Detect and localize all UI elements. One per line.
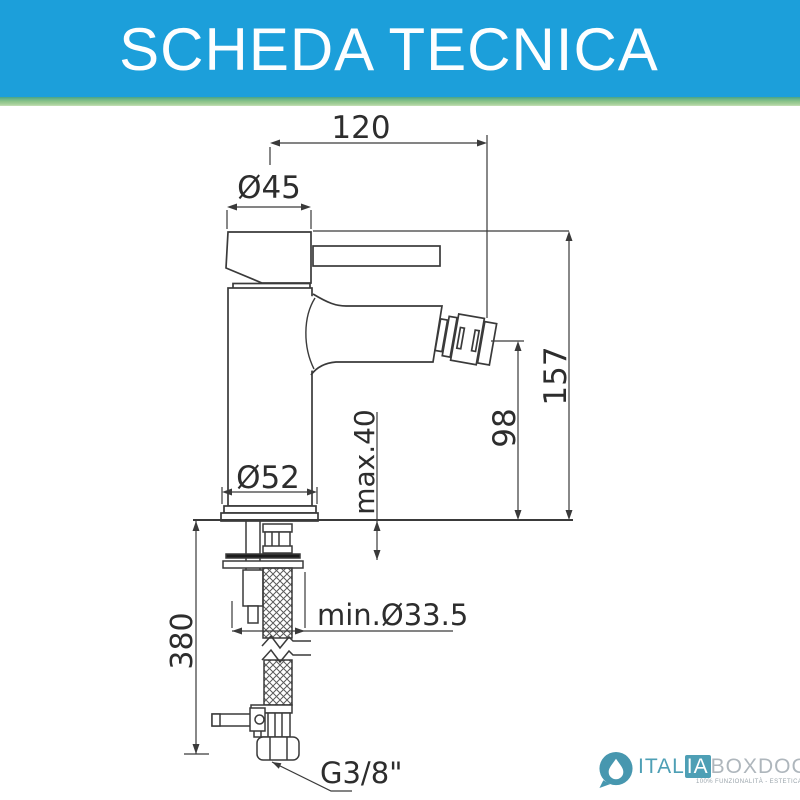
stud-nut [243,570,263,606]
aerator [434,311,497,367]
technical-drawing: 120 Ø45 157 98 max.40 Ø52 380 min.Ø33.5 … [0,106,800,800]
shank-collar-bottom [263,546,292,553]
faucet-spout-mask [306,296,442,371]
water-drop-icon [597,751,635,789]
base-flange-upper [224,506,316,513]
dim-hose-length: 380 [165,612,200,669]
technical-sheet-page: SCHEDA TECNICA [0,0,800,800]
dim-connection-thread: G3/8" [320,756,402,790]
clamping-plate [223,561,303,568]
gasket [226,554,300,558]
braided-hose-upper [263,568,292,638]
brand-tagline: 100% FUNZIONALITÀ - ESTETICA - PRATICITÀ [696,779,800,785]
under-deck-parts [212,521,311,760]
brand-name-rest: BOXDOCCIA [711,755,800,778]
brand-name-first: ITAL [638,755,685,778]
stud-tip [248,606,258,623]
dim-base-diameter: Ø52 [236,460,300,496]
hex-nut [257,737,299,760]
dim-min-hole-diameter: min.Ø33.5 [317,598,468,632]
dim-spout-height: 98 [487,408,523,447]
shank-collar-top [263,524,292,532]
dim-spout-projection: 120 [331,110,390,146]
page-title: SCHEDA TECNICA [0,0,800,97]
header-banner: SCHEDA TECNICA [0,0,800,97]
bracket-screw [255,715,264,724]
dim-total-height: 157 [538,346,574,405]
dim-deck-max-thickness: max.40 [348,409,381,515]
dim-cap-diameter: Ø45 [237,170,301,206]
brand-name-highlight: IA [685,755,711,778]
faucet-cap [226,232,311,283]
brand-logo: ITALIABOXDOCCIA 100% FUNZIONALITÀ - ESTE… [597,750,797,795]
brand-wordmark: ITALIABOXDOCCIA 100% FUNZIONALITÀ - ESTE… [638,756,800,785]
header-divider [0,97,800,106]
shank-ribs [265,532,290,547]
side-pipe-cap [212,714,220,726]
braided-hose-lower [264,660,292,705]
faucet-lever [313,246,440,266]
drawing-area: 120 Ø45 157 98 max.40 Ø52 380 min.Ø33.5 … [0,106,800,800]
